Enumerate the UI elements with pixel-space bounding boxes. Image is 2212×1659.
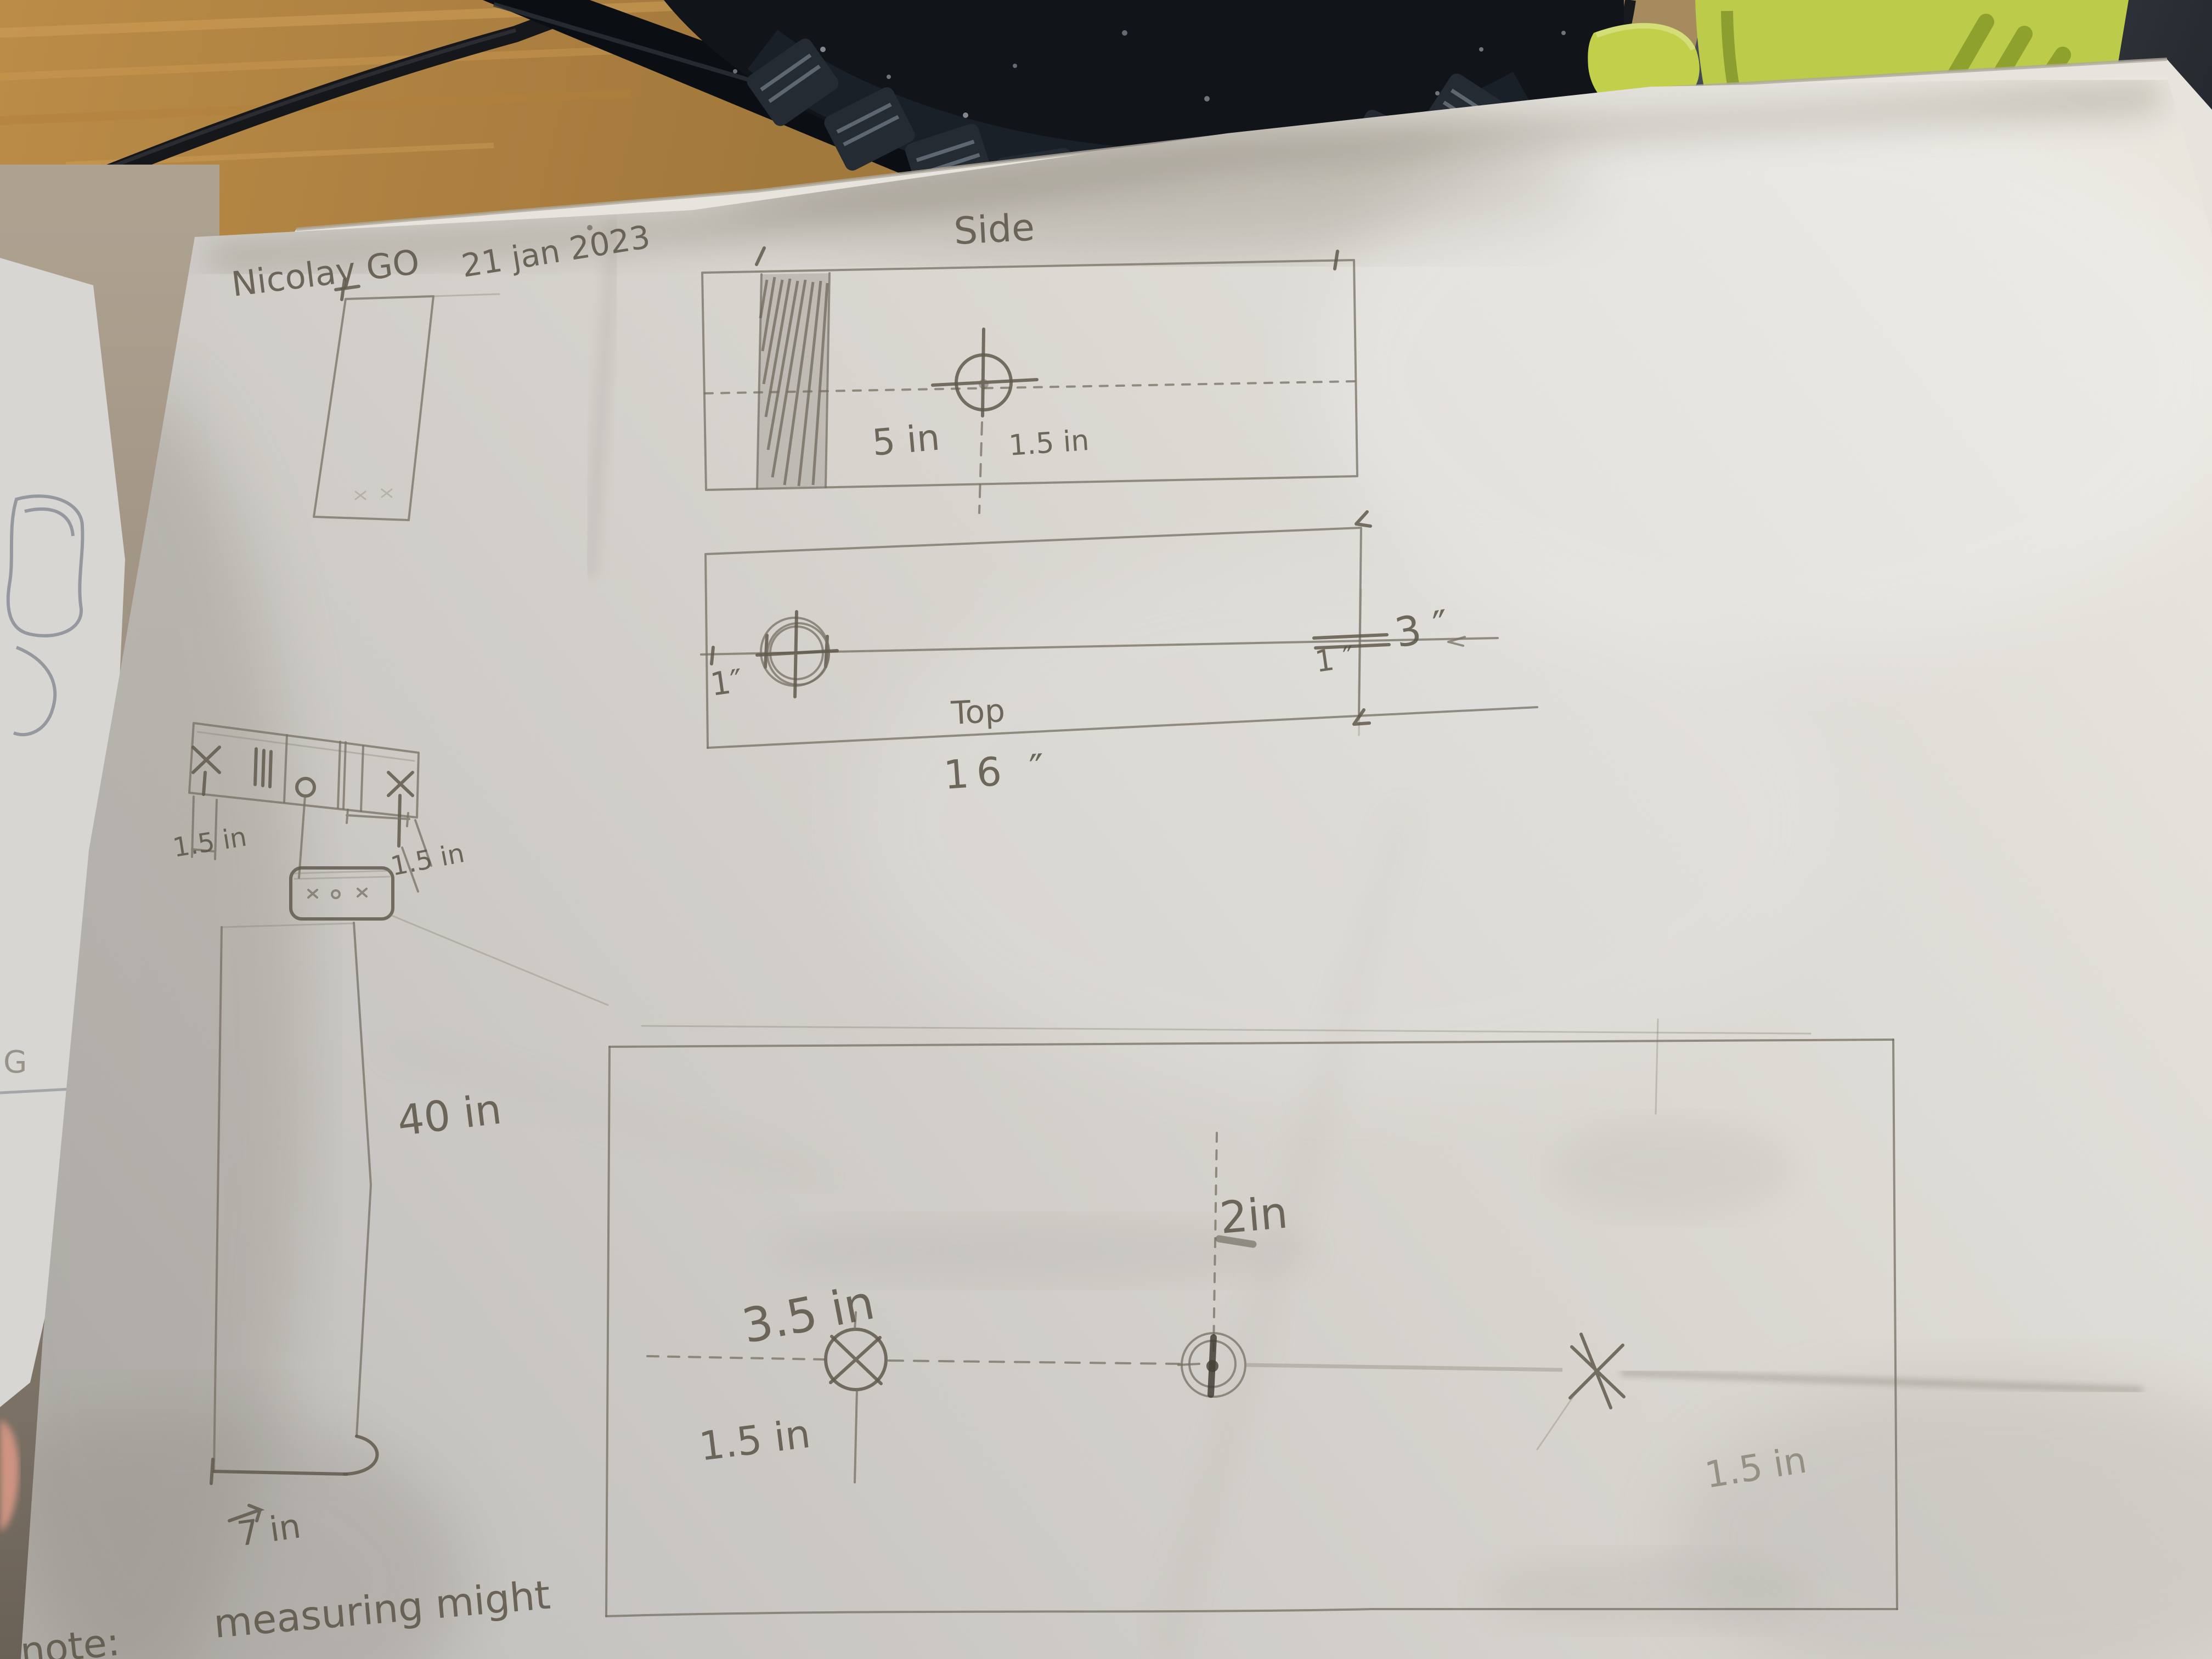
photo-scene: G Nicolay GO — [0, 0, 2212, 1659]
vignette — [0, 0, 2212, 1659]
photo-canvas: G Nicolay GO — [0, 0, 2212, 1659]
